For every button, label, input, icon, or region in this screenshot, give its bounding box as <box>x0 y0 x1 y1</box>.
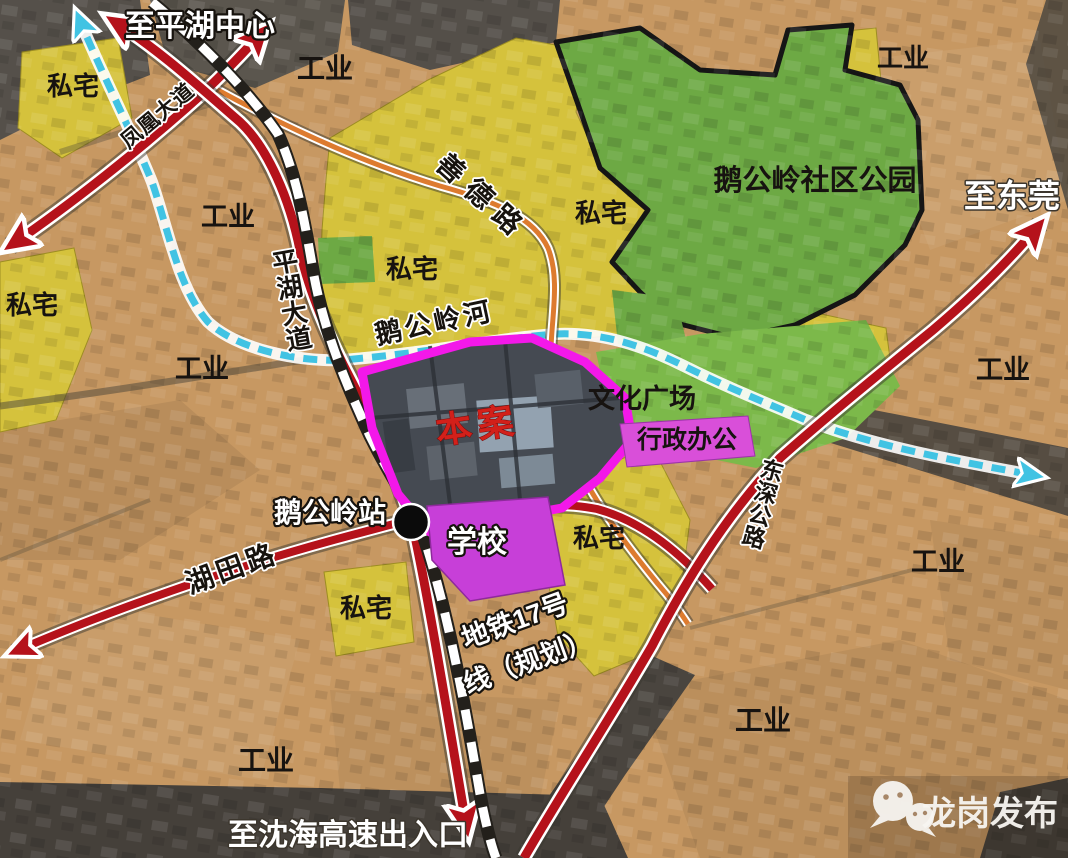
label-residential: 私宅 <box>47 71 99 101</box>
watermark: 龙岗发布 <box>848 776 1068 858</box>
label-industrial: 工业 <box>976 355 1030 385</box>
label-to-pinghu-center: 至平湖中心 <box>125 10 275 43</box>
label-industrial: 工业 <box>911 547 965 577</box>
label-park: 鹅公岭社区公园 <box>713 163 916 197</box>
label-industrial: 工业 <box>238 745 294 776</box>
label-station: 鹅公岭站 <box>274 496 386 528</box>
label-to-shenhai-expressway: 至沈海高速出入口 <box>228 819 468 852</box>
label-industrial: 工业 <box>877 43 929 73</box>
label-to-dongguan: 至东莞 <box>964 178 1060 214</box>
label-admin-office: 行政办公 <box>636 425 737 454</box>
label-residential: 私宅 <box>6 290 58 320</box>
label-residential: 私宅 <box>575 198 627 228</box>
map-canvas: 至平湖中心 至东莞 至沈海高速出入口 工业 工业 工业 工业 工业 工业 工业 … <box>0 0 1068 858</box>
label-culture-plaza: 文化广场 <box>588 383 696 414</box>
label-residential: 私宅 <box>573 523 625 553</box>
metro-station-dot <box>393 504 429 540</box>
label-industrial: 工业 <box>175 354 229 384</box>
label-school: 学校 <box>447 525 507 559</box>
label-industrial: 工业 <box>201 202 255 232</box>
label-residential: 私宅 <box>340 593 392 623</box>
planning-map: 至平湖中心 至东莞 至沈海高速出入口 工业 工业 工业 工业 工业 工业 工业 … <box>0 0 1068 858</box>
label-residential: 私宅 <box>386 254 438 284</box>
watermark-text: 龙岗发布 <box>922 795 1058 833</box>
label-industrial: 工业 <box>735 705 791 736</box>
label-industrial: 工业 <box>297 53 353 84</box>
